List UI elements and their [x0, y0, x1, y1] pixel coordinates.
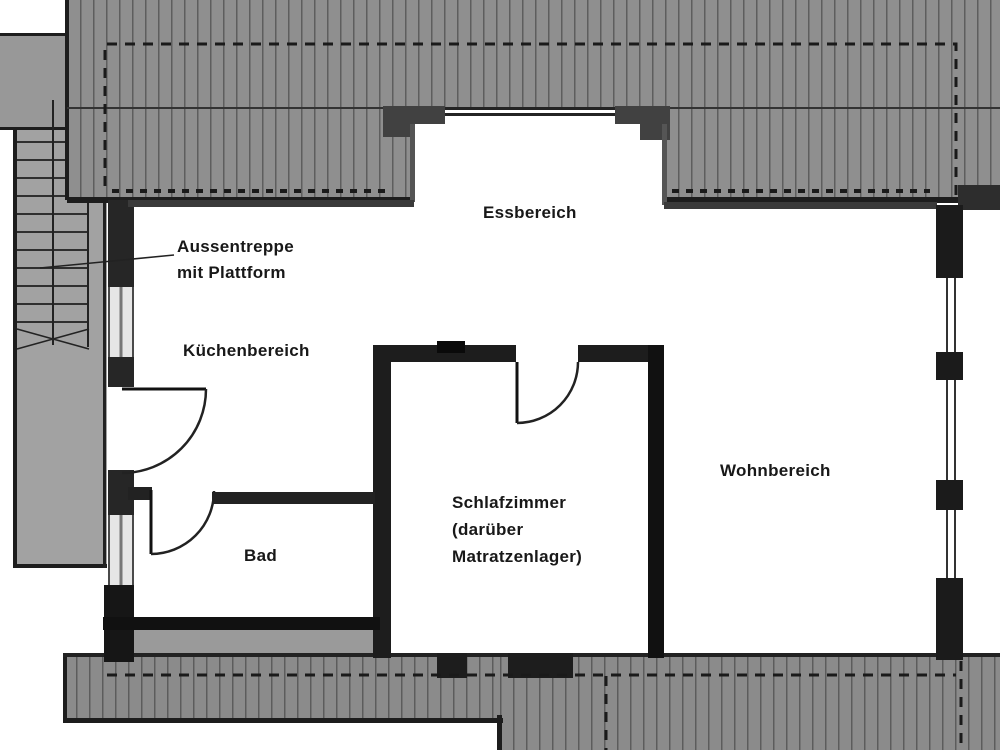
- room-label-bad: Bad: [244, 546, 277, 566]
- annotation-aussentreppe-line2: mit Plattform: [177, 260, 294, 286]
- room-label-schlafzimmer-line1: Schlafzimmer: [452, 489, 582, 516]
- bay-jamb-left: [410, 124, 415, 202]
- terrace-strip-below-bad: [134, 630, 373, 653]
- window-left-lower: [108, 515, 134, 585]
- wall-schlafzimmer-right: [648, 345, 664, 658]
- annotation-aussentreppe: Aussentreppe mit Plattform: [177, 234, 294, 286]
- stairs-center-line: [52, 100, 54, 345]
- neighbor-roof-edge: [0, 33, 67, 36]
- roof-notch-essbereich: [414, 116, 664, 200]
- door-entrance-swing-arc: [122, 389, 206, 473]
- window-right-3: [946, 510, 956, 578]
- window-right-2: [946, 380, 956, 480]
- bottom-band-bottom-edge: [63, 718, 503, 723]
- wall-schlafzimmer-left: [373, 345, 391, 658]
- neighbor-roof-block: [0, 36, 67, 130]
- wall-bad-top: [212, 492, 375, 504]
- door-schlafzimmer-swing-arc: [517, 362, 578, 423]
- wall-schlafzimmer-top-post: [437, 341, 465, 353]
- room-label-schlafzimmer: Schlafzimmer (darüber Matratzenlager): [452, 489, 582, 570]
- door-bad-swing-arc: [151, 491, 214, 554]
- stairs-bottom-edge: [13, 564, 107, 568]
- bottom-band-step-edge: [497, 715, 502, 750]
- room-label-wohnbereich: Wohnbereich: [720, 461, 831, 481]
- roof-right-fascia: [958, 185, 1000, 210]
- wall-top-left-segment: [128, 200, 414, 207]
- wall-bad-bottom: [103, 617, 380, 630]
- wall-left-seg-1: [108, 200, 134, 287]
- bottom-band-left-edge: [63, 657, 67, 718]
- wall-top-right-segment: [664, 202, 937, 209]
- room-label-essbereich: Essbereich: [483, 203, 577, 223]
- annotation-aussentreppe-line1: Aussentreppe: [177, 234, 294, 260]
- wall-right-pier-1: [936, 205, 963, 278]
- bottom-wall-pier-2: [508, 653, 573, 678]
- window-left-upper: [108, 287, 134, 357]
- room-label-schlafzimmer-line3: Matratzenlager): [452, 543, 582, 570]
- room-label-kuechenbereich: Küchenbereich: [183, 341, 310, 361]
- bottom-wall-pier-1: [437, 653, 467, 678]
- bay-jamb-right: [662, 124, 667, 205]
- bay-window: [445, 107, 617, 116]
- roof-left-edge: [65, 0, 69, 200]
- wall-left-seg-2: [108, 357, 134, 387]
- wall-right-pier-3: [936, 480, 963, 510]
- room-label-schlafzimmer-line2: (darüber: [452, 516, 582, 543]
- bottom-band-left: [63, 657, 500, 718]
- wall-right-pier-4: [936, 578, 963, 660]
- window-right-1: [946, 278, 956, 352]
- floorplan-canvas: Essbereich Aussentreppe mit Plattform Kü…: [0, 0, 1000, 750]
- bottom-band-right: [500, 657, 1000, 750]
- wall-bad-top-stub: [128, 487, 152, 500]
- wall-right-pier-2: [936, 352, 963, 380]
